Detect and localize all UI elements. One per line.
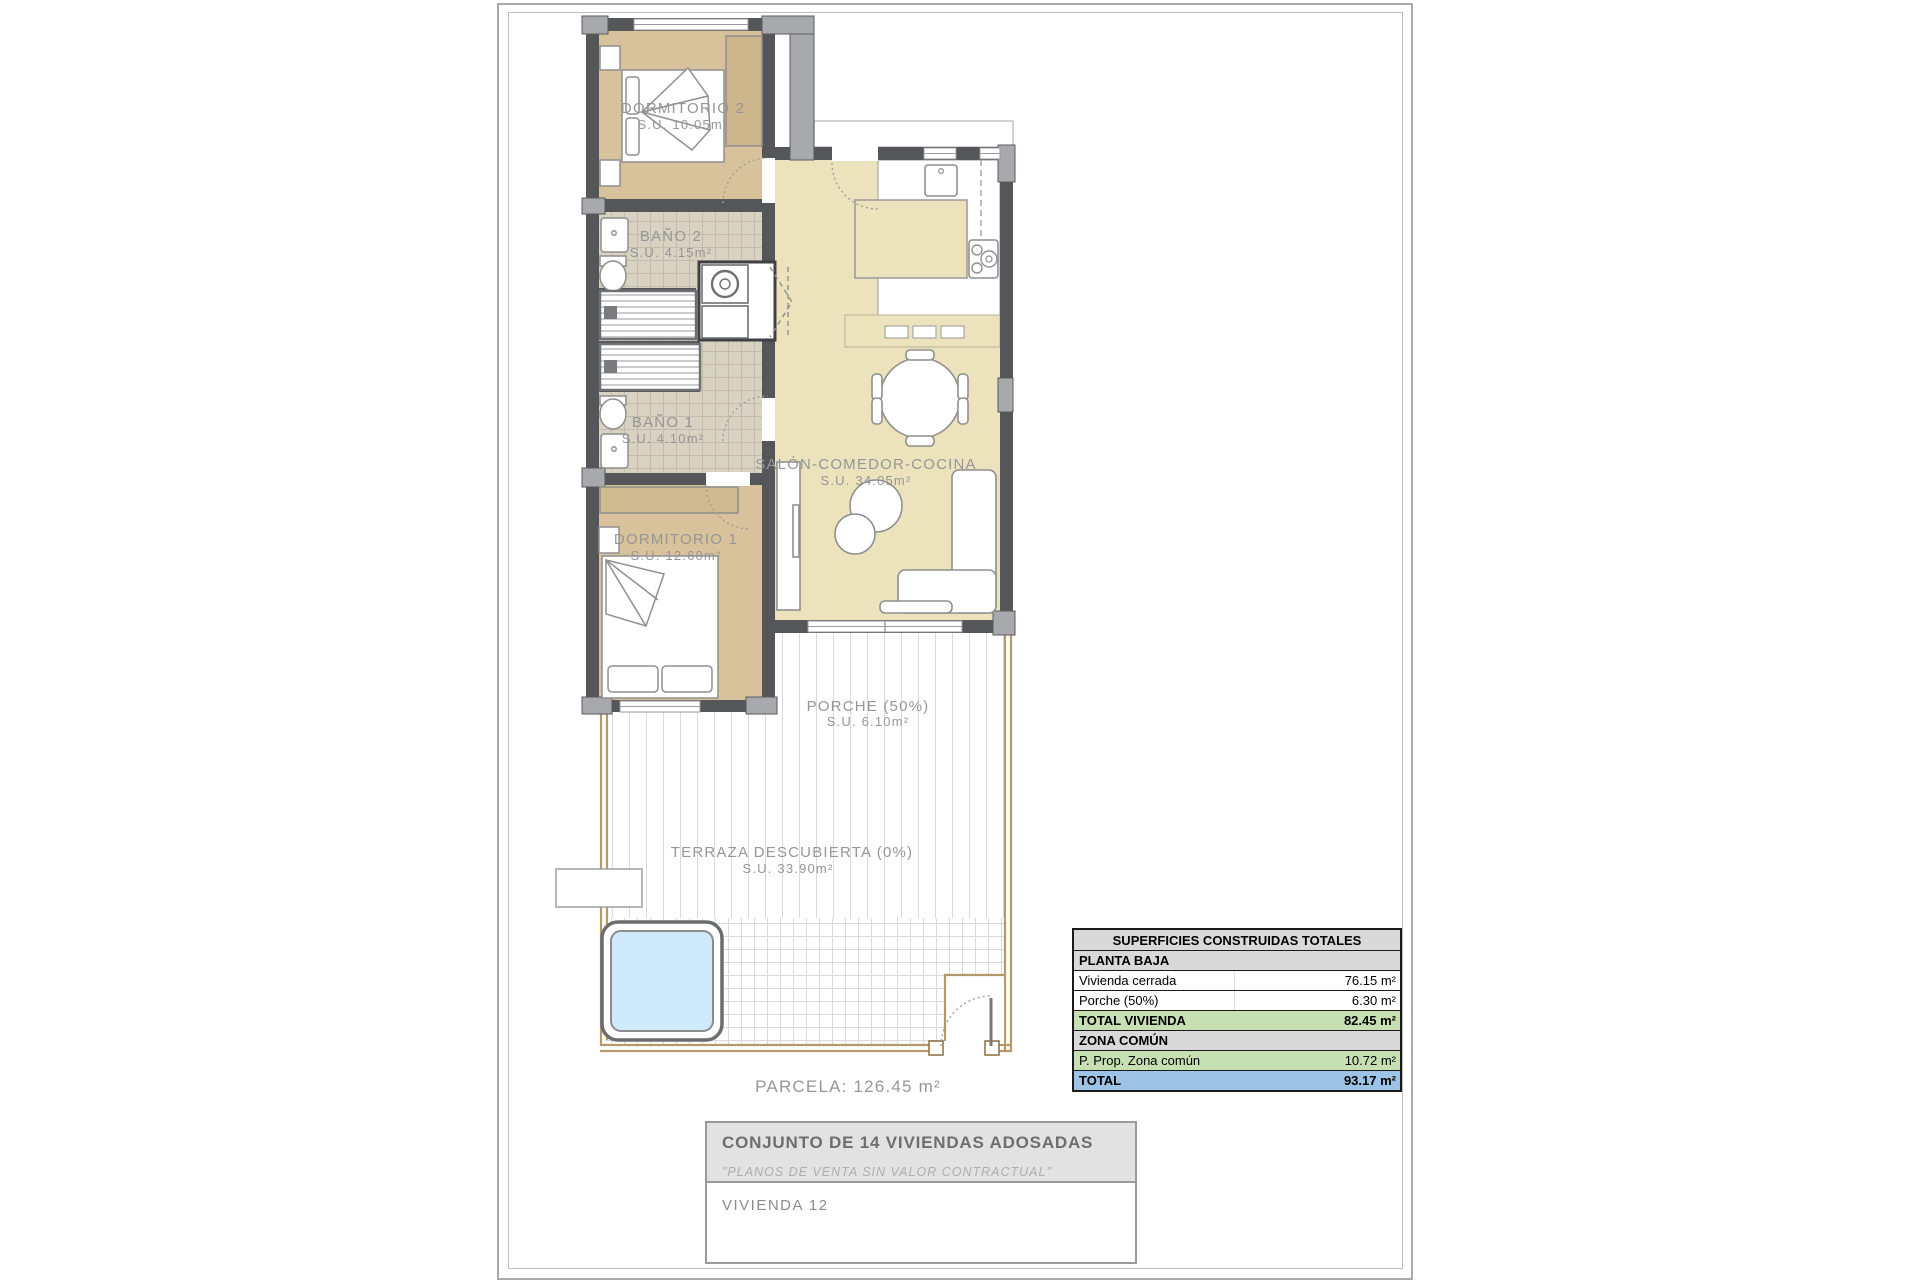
window-kitchen-2 [980,148,1000,159]
label-bano-2: BAÑO 2 [640,228,702,245]
page: { "plan": { "rooms": [ {"name": "DORMITO… [0,0,1920,1280]
label-dormitorio-2: DORMITORIO 2 [621,100,745,117]
label-terraza-area: S.U. 33.90m² [743,861,834,876]
kitchen-sink [925,165,957,196]
table-row-vivienda-cerrada: Vivienda cerrada76.15 m² [1074,970,1400,990]
chair [906,350,934,360]
window-dormitorio-2 [634,19,748,30]
pillow [662,666,712,692]
shower-drain [604,360,617,373]
label-bano-1-area: S.U. 4.10m² [622,431,705,446]
label-bano-1: BAÑO 1 [632,414,694,431]
pool [602,922,722,1040]
pillow [608,666,658,692]
table-row-total: TOTAL93.17 m² [1074,1070,1400,1090]
table-row-zona-comun: ZONA COMÚN [1074,1030,1400,1050]
label-terraza: TERRAZA DESCUBIERTA (0%) [671,844,913,861]
nightstand [600,46,620,70]
table-row-planta-baja: PLANTA BAJA [1074,950,1400,970]
title-block-header: CONJUNTO DE 14 VIVIENDAS ADOSADAS "PLANO… [707,1123,1135,1183]
chair [958,374,968,400]
window-dormitorio-1 [620,701,700,712]
label-porche-area: S.U. 6.10m² [827,714,910,729]
toilet-bowl [600,261,626,291]
table-row-prop-zona-comun: P. Prop. Zona común10.72 m² [1074,1050,1400,1070]
unit-label: VIVIENDA 12 [722,1197,1120,1214]
wardrobe [600,487,738,513]
laundry-counter [702,306,748,338]
window-salon-sliding-door [808,621,962,632]
label-dormitorio-1: DORMITORIO 1 [614,531,738,548]
dining-table [880,358,960,438]
project-title: CONJUNTO DE 14 VIVIENDAS ADOSADAS [722,1133,1120,1153]
title-block-body: VIVIENDA 12 [707,1183,1135,1228]
kitchen-island [855,200,967,278]
label-porche: PORCHE (50%) [807,698,930,715]
tv [793,505,799,557]
kitchen-stove [969,240,998,278]
label-dormitorio-1-area: S.U. 12.60m² [631,548,722,563]
title-block: CONJUNTO DE 14 VIVIENDAS ADOSADAS "PLANO… [705,1121,1137,1264]
sofa-arm [880,601,952,613]
label-dormitorio-2-area: S.U. 10.05m² [638,117,729,132]
table-row-porche: Porche (50%)6.30 m² [1074,990,1400,1010]
chair [872,398,882,424]
label-parcela: PARCELA: 126.45 m² [755,1077,941,1096]
terrace-step [556,869,642,907]
coffee-table [835,514,875,554]
shower-drain [604,306,617,319]
label-salon-area: S.U. 34.05m² [821,473,912,488]
toilet-bowl [600,399,626,429]
chair [958,398,968,424]
table-row-total-vivienda: TOTAL VIVIENDA82.45 m² [1074,1010,1400,1030]
entry-eave-line [814,121,1013,147]
surfaces-table-title: SUPERFICIES CONSTRUIDAS TOTALES [1074,930,1400,950]
gate-jamb-left [929,1041,943,1055]
chair [906,436,934,446]
nightstand [600,160,620,186]
label-salon: SALÓN-COMEDOR-COCINA [755,456,977,473]
disclaimer-text: "PLANOS DE VENTA SIN VALOR CONTRACTUAL" [722,1165,1120,1179]
surfaces-table: SUPERFICIES CONSTRUIDAS TOTALES PLANTA B… [1072,928,1402,1092]
label-bano-2-area: S.U. 4.15m² [630,245,713,260]
wardrobe [726,36,762,146]
floor-plan: DORMITORIO 2 S.U. 10.05m² BAÑO 2 S.U. 4.… [0,0,1920,1280]
window-kitchen-1 [924,148,956,159]
chair [872,374,882,400]
